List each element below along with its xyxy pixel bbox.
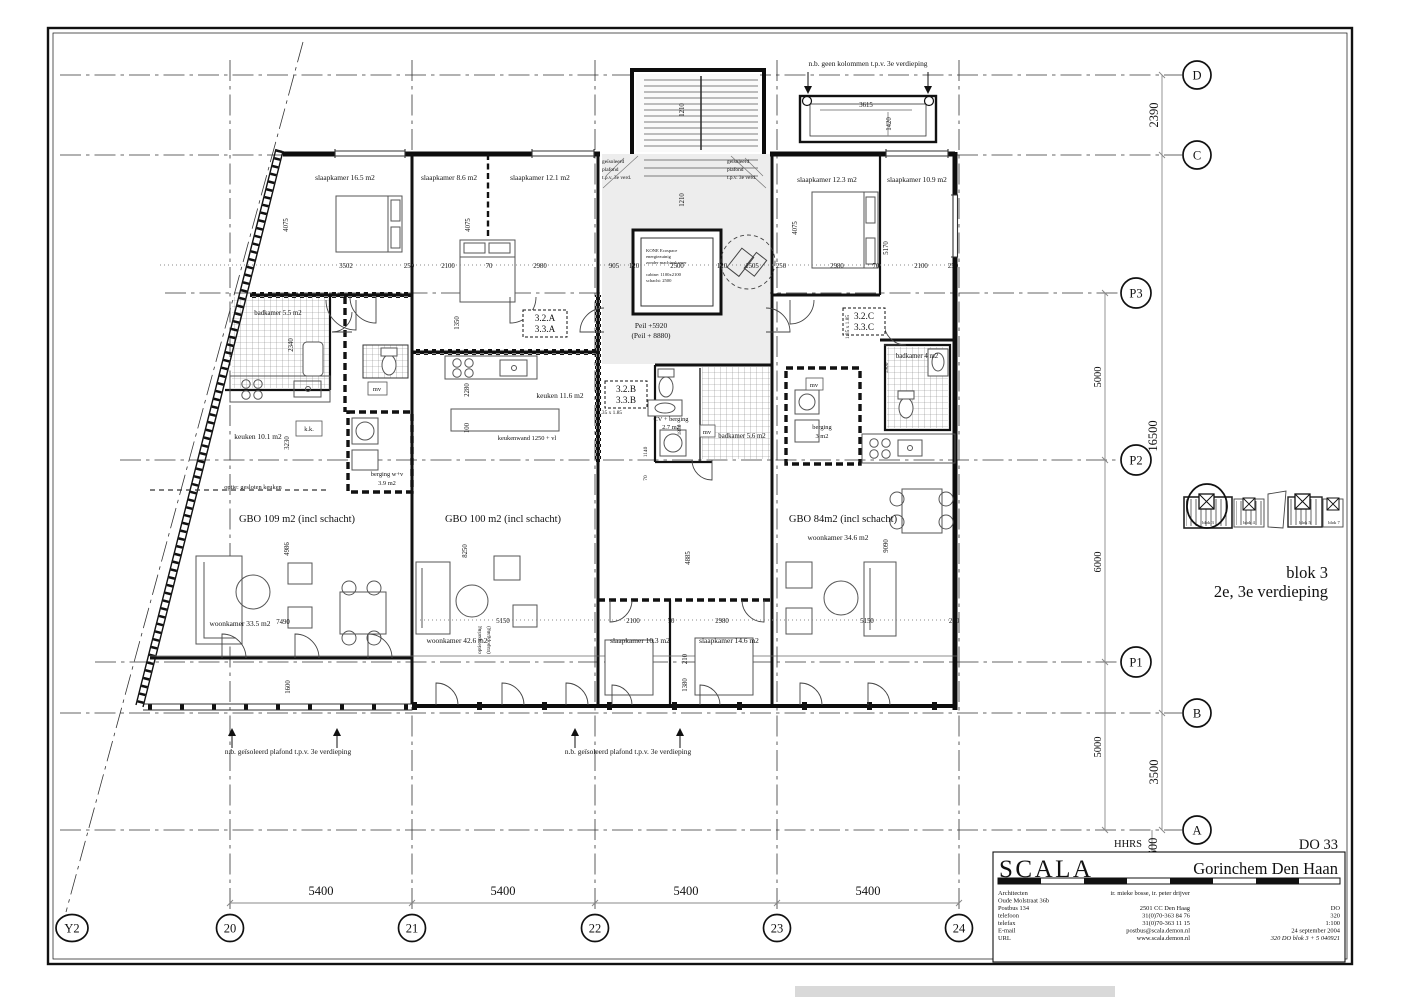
svg-text:5170: 5170 bbox=[883, 241, 890, 255]
fax-value: 31(0)70-363 11 15 bbox=[1142, 920, 1190, 927]
room-slaapkamer-165: slaapkamer 16.5 m2 bbox=[315, 173, 375, 182]
room-berging-3b: 3 m2 bbox=[816, 433, 829, 440]
svg-text:8250: 8250 bbox=[462, 544, 469, 558]
grid-row-d: D bbox=[1192, 69, 1201, 83]
bay-dim-4: 5400 bbox=[856, 884, 881, 898]
svg-text:1900: 1900 bbox=[884, 362, 890, 373]
grid-col-21: 21 bbox=[406, 922, 419, 936]
block-title: blok 3 bbox=[1286, 563, 1328, 582]
svg-text:70: 70 bbox=[643, 475, 649, 481]
grid-col-22: 22 bbox=[589, 922, 602, 936]
keyplan-blok7: blok 7 bbox=[1328, 520, 1340, 525]
iso-note-left-2: plafond bbox=[602, 166, 619, 173]
email-value: postbus@scala.demon.nl bbox=[1126, 928, 1190, 935]
svg-text:1420: 1420 bbox=[886, 117, 893, 131]
grid-row-a: A bbox=[1192, 824, 1201, 838]
svg-text:250: 250 bbox=[776, 263, 787, 270]
doc-type: DO bbox=[1331, 905, 1341, 912]
svg-text:1140: 1140 bbox=[643, 446, 649, 457]
drawing-scale: 1:100 bbox=[1325, 920, 1340, 927]
mv-label-1: mv bbox=[373, 386, 382, 393]
bay-dim-1: 5400 bbox=[309, 884, 334, 898]
iso-note-left-1: geïsoleerd bbox=[602, 159, 624, 165]
gbo-109-label: GBO 109 m2 (incl schacht) bbox=[239, 514, 356, 525]
room-badkamer-55: badkamer 5.5 m2 bbox=[254, 310, 302, 317]
grid-col-23: 23 bbox=[771, 922, 784, 936]
email-label: E-mail bbox=[998, 928, 1016, 935]
grid-row-p2: P2 bbox=[1129, 454, 1142, 468]
project-name: Gorinchem Den Haan bbox=[1193, 859, 1338, 878]
svg-text:1210: 1210 bbox=[679, 193, 686, 207]
svg-text:2980: 2980 bbox=[830, 263, 844, 270]
svg-text:16500: 16500 bbox=[1146, 420, 1160, 451]
floor-plan-sheet: 3.2.A 3.3.A 3.2.B 3.3.B 3.2.C 3.3.C slaa… bbox=[0, 0, 1414, 1000]
room-slaapkamer-103: slaapkamer 10.3 m2 bbox=[610, 636, 670, 645]
svg-text:2500: 2500 bbox=[670, 263, 684, 270]
svg-text:5150: 5150 bbox=[496, 618, 510, 625]
gbo-100-label: GBO 100 m2 (incl schacht) bbox=[445, 514, 562, 525]
lift-note-2: energiezuinig bbox=[646, 254, 672, 259]
lift-note-1: KONE Ecospace bbox=[646, 248, 677, 253]
room-badkamer-4: badkamer 4 m2 bbox=[896, 353, 939, 360]
svg-text:70: 70 bbox=[486, 263, 493, 270]
room-berging-39: berging w+v bbox=[371, 471, 404, 478]
unit-a-label: 3.2.A bbox=[535, 313, 556, 323]
room-badkamer-56: badkamer 5.6 m2 bbox=[718, 433, 766, 440]
svg-text:1350: 1350 bbox=[454, 316, 461, 330]
svg-text:1210: 1210 bbox=[679, 103, 686, 117]
phone-value: 31(0)70-363 84 76 bbox=[1142, 913, 1190, 920]
grid-row-b: B bbox=[1193, 707, 1201, 721]
grid-col-24: 24 bbox=[953, 922, 966, 936]
room-slaapkamer-146: slaapkamer 14.6 m2 bbox=[699, 636, 759, 645]
unit-b-label2: 3.3.B bbox=[616, 395, 636, 405]
room-slaapkamer-123: slaapkamer 12.3 m2 bbox=[797, 175, 857, 184]
svg-text:120: 120 bbox=[629, 263, 640, 270]
svg-text:5000: 5000 bbox=[1093, 367, 1104, 388]
peil-label2: (Peil + 8880) bbox=[631, 331, 671, 340]
svg-text:2280: 2280 bbox=[464, 383, 471, 397]
room-slaapkamer-121: slaapkamer 12.1 m2 bbox=[510, 173, 570, 182]
svg-text:1505: 1505 bbox=[745, 263, 759, 270]
grid-col-20: 20 bbox=[224, 922, 237, 936]
room-woonkamer-346: woonkamer 34.6 m2 bbox=[808, 533, 869, 542]
grid-row-c: C bbox=[1193, 149, 1201, 163]
svg-text:2100: 2100 bbox=[441, 263, 455, 270]
svg-text:4075: 4075 bbox=[283, 218, 290, 232]
doc-number: 320 bbox=[1330, 913, 1340, 920]
room-keukenwand: keukenwand 1250 + vl bbox=[498, 435, 557, 442]
room-slaapkamer-86: slaapkamer 8.6 m2 bbox=[421, 173, 477, 182]
fax-label: telefax bbox=[998, 920, 1016, 927]
lift-note-5: schacht: 2500 bbox=[646, 278, 672, 283]
mv-label-2: mv bbox=[810, 382, 819, 389]
firm-city: 2501 CC Den Haag bbox=[1140, 905, 1191, 912]
room-keuken-116: keuken 11.6 m2 bbox=[536, 391, 583, 400]
kk-label: k.k. bbox=[304, 426, 314, 433]
grid-col-y2: Y2 bbox=[64, 922, 79, 936]
svg-text:1850: 1850 bbox=[677, 424, 683, 435]
svg-text:2390: 2390 bbox=[1147, 103, 1161, 128]
svg-text:250: 250 bbox=[949, 618, 960, 625]
architects-names: ir. mieke bosse, ir. peter drijver bbox=[1110, 890, 1190, 897]
note-no-columns: n.b. geen kolommen t.p.v. 3e verdieping bbox=[809, 59, 928, 68]
svg-text:5150: 5150 bbox=[860, 618, 874, 625]
url-label: URL bbox=[998, 935, 1011, 942]
peil-label: Peil +5920 bbox=[635, 321, 668, 330]
svg-text:2980: 2980 bbox=[533, 263, 547, 270]
phone-label: telefoon bbox=[998, 913, 1020, 920]
svg-text:70: 70 bbox=[668, 618, 675, 625]
room-slaapkamer-109: slaapkamer 10.9 m2 bbox=[887, 175, 947, 184]
svg-text:4986: 4986 bbox=[284, 542, 291, 556]
svg-text:2100: 2100 bbox=[914, 263, 928, 270]
svg-text:2980: 2980 bbox=[715, 618, 729, 625]
svg-text:250: 250 bbox=[404, 263, 415, 270]
firm-po: Postbus 134 bbox=[998, 905, 1030, 912]
svg-text:9090: 9090 bbox=[883, 539, 890, 553]
svg-text:5000: 5000 bbox=[1093, 737, 1104, 758]
note-optie-sparing: optie sparing bbox=[477, 626, 483, 654]
svg-text:4885: 4885 bbox=[685, 551, 692, 565]
turning-dim-2: 1.35 x 1.85 bbox=[845, 315, 851, 340]
grid-row-p1: P1 bbox=[1129, 656, 1142, 670]
unit-c-label: 3.2.C bbox=[854, 311, 874, 321]
keyplan-blok4: blok 4 bbox=[1243, 520, 1255, 525]
svg-text:3230: 3230 bbox=[284, 436, 291, 450]
svg-text:210: 210 bbox=[682, 653, 689, 664]
room-woonkamer-335: woonkamer 33.5 m2 bbox=[210, 619, 271, 628]
iso-note-right-1: geïsoleerd bbox=[727, 159, 749, 165]
svg-text:4075: 4075 bbox=[792, 221, 799, 235]
svg-text:250: 250 bbox=[948, 263, 959, 270]
svg-text:70: 70 bbox=[873, 263, 880, 270]
firm-street: Oude Molstraat 36b bbox=[998, 898, 1049, 905]
svg-text:4075: 4075 bbox=[465, 218, 472, 232]
drawing-number: DO 33 bbox=[1299, 837, 1338, 853]
unit-a-label2: 3.3.A bbox=[535, 324, 556, 334]
svg-text:1600: 1600 bbox=[285, 680, 292, 694]
svg-text:2340: 2340 bbox=[288, 338, 295, 352]
iso-note-right-2: plafond bbox=[727, 166, 744, 173]
turning-dim-1: 1.35 x 1.85 bbox=[598, 410, 623, 416]
svg-text:3502: 3502 bbox=[339, 263, 353, 270]
hhrs-label: HHRS bbox=[1114, 839, 1142, 850]
svg-text:6000: 6000 bbox=[1093, 552, 1104, 573]
note-insulated-2: n.b. geïsoleerd plafond t.p.v. 3e verdie… bbox=[565, 747, 692, 756]
room-berging-39b: 3.9 m2 bbox=[378, 480, 396, 487]
svg-text:905: 905 bbox=[609, 263, 620, 270]
unit-b-label: 3.2.B bbox=[616, 384, 636, 394]
svg-text:7490: 7490 bbox=[276, 619, 290, 626]
grid-row-p3: P3 bbox=[1129, 287, 1142, 301]
title-block: DO 33 SCALA Gorinchem Den Haan Architect… bbox=[993, 837, 1345, 962]
room-berging-3: berging bbox=[812, 424, 832, 431]
svg-text:3615: 3615 bbox=[859, 102, 873, 109]
file-reference: 320 DO blok 3 + 5 040921 bbox=[1270, 935, 1340, 942]
svg-text:100: 100 bbox=[464, 422, 471, 433]
room-cv-berging: CV + berging bbox=[654, 416, 690, 423]
svg-text:3500: 3500 bbox=[1147, 760, 1161, 785]
drawing-date: 24 september 2004 bbox=[1291, 928, 1340, 935]
bay-dim-3: 5400 bbox=[674, 884, 699, 898]
keyplan-blok5: blok 5 bbox=[1299, 520, 1311, 525]
room-keuken-101: keuken 10.1 m2 bbox=[234, 432, 282, 441]
bay-dim-2: 5400 bbox=[491, 884, 516, 898]
lift-note-4: cabine: 1100x2100 bbox=[646, 272, 682, 277]
mv-label-3: mv bbox=[703, 429, 712, 436]
svg-text:2100: 2100 bbox=[626, 618, 640, 625]
note-optie-keuken: optie: gesloten keuken bbox=[224, 484, 282, 491]
unit-c-label2: 3.3.C bbox=[854, 322, 874, 332]
iso-note-right-3: t.p.v. 3e verd. bbox=[727, 175, 756, 181]
keyplan-blok3: blok 3 bbox=[1202, 520, 1214, 525]
note-insulated-1: n.b. geïsoleerd plafond t.p.v. 3e verdie… bbox=[225, 747, 352, 756]
svg-text:120: 120 bbox=[717, 263, 728, 270]
architects-label: Architecten bbox=[998, 890, 1029, 897]
iso-note-left-3: t.p.v. 3e verd. bbox=[602, 175, 631, 181]
note-optie-sparing2: (trapopgang) bbox=[485, 626, 492, 654]
floor-title: 2e, 3e verdieping bbox=[1214, 582, 1328, 601]
gbo-84-label: GBO 84m2 (incl schacht) bbox=[789, 514, 898, 525]
url-value: www.scala.demon.nl bbox=[1137, 935, 1191, 942]
svg-text:1380: 1380 bbox=[682, 678, 689, 692]
